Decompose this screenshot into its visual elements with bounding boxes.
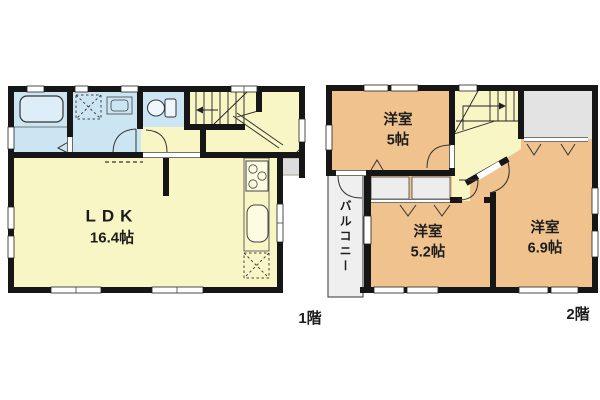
sink-icon <box>247 205 268 242</box>
room-size: 16.4帖 <box>86 228 139 248</box>
floor2-label: 2階 <box>566 305 589 325</box>
room-size: 6.9帖 <box>528 239 563 259</box>
room-name: LDK <box>86 205 139 228</box>
floorplan-image: LDK 16.4帖 洋室 5帖 洋室 5.2帖 洋室 6.9帖 バルコニー 1階… <box>0 0 600 400</box>
balcony-label: バルコニー <box>337 200 353 275</box>
floor2-plan <box>326 85 598 297</box>
room-name: 洋室 <box>384 111 413 131</box>
room-name: 洋室 <box>411 223 446 243</box>
room-size: 5帖 <box>384 131 413 151</box>
room-name: 洋室 <box>528 219 563 239</box>
toilet-icon <box>148 99 177 117</box>
floorplan-drawing <box>0 0 600 400</box>
floor1-plan <box>8 86 305 293</box>
room-size: 5.2帖 <box>411 243 446 263</box>
room-label-ldk: LDK 16.4帖 <box>86 205 139 248</box>
floor1-label: 1階 <box>298 309 321 329</box>
room-label-western-6-9: 洋室 6.9帖 <box>528 219 563 258</box>
stove-icon <box>246 161 268 191</box>
room-label-western-5: 洋室 5帖 <box>384 111 413 150</box>
entrance-porch <box>281 158 302 175</box>
room-label-western-5-2: 洋室 5.2帖 <box>411 223 446 262</box>
